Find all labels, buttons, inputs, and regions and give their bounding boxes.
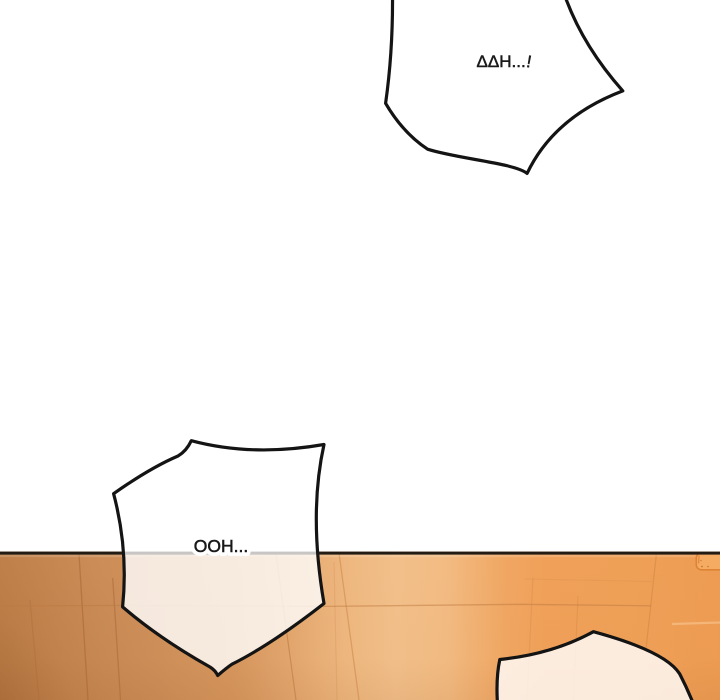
svg-text:OOH...: OOH...: [194, 536, 248, 556]
svg-text:ΔΔH...!: ΔΔH...!: [477, 52, 533, 72]
